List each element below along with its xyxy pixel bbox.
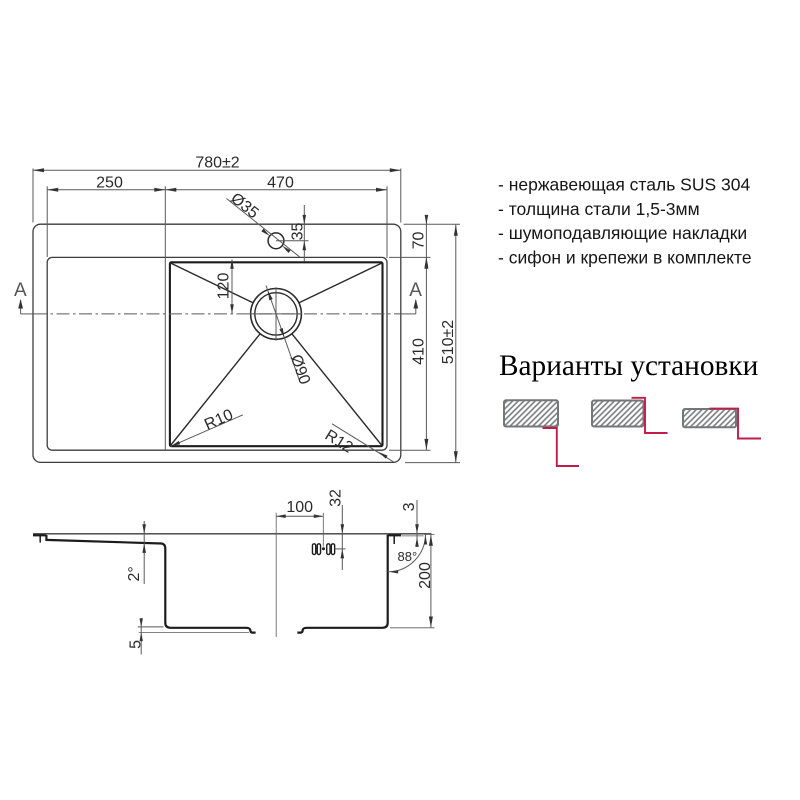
svg-text:88°: 88° <box>398 549 418 564</box>
svg-text:100: 100 <box>286 499 313 516</box>
svg-text:5: 5 <box>128 640 145 649</box>
svg-text:250: 250 <box>96 174 123 191</box>
svg-text:70: 70 <box>410 232 427 250</box>
svg-text:A: A <box>14 280 27 301</box>
svg-text:510±2: 510±2 <box>440 320 457 364</box>
svg-text:- сифон и крепежи в комплекте: - сифон и крепежи в комплекте <box>498 248 752 268</box>
svg-text:35: 35 <box>290 223 307 241</box>
svg-text:- толщина стали 1,5-3мм: - толщина стали 1,5-3мм <box>498 199 700 219</box>
svg-text:32: 32 <box>327 489 344 507</box>
svg-text:200: 200 <box>417 562 434 589</box>
svg-text:Варианты установки: Варианты установки <box>499 350 758 382</box>
svg-text:A: A <box>409 280 422 301</box>
svg-text:780±2: 780±2 <box>195 154 239 171</box>
svg-text:120: 120 <box>216 273 233 300</box>
svg-text:470: 470 <box>267 174 294 191</box>
svg-text:2°: 2° <box>126 566 143 581</box>
svg-text:3: 3 <box>401 502 418 511</box>
svg-text:410: 410 <box>411 338 428 365</box>
svg-text:- шумоподавляющие накладки: - шумоподавляющие накладки <box>498 223 747 243</box>
svg-text:- нержавеющая сталь SUS 304: - нержавеющая сталь SUS 304 <box>498 175 750 195</box>
